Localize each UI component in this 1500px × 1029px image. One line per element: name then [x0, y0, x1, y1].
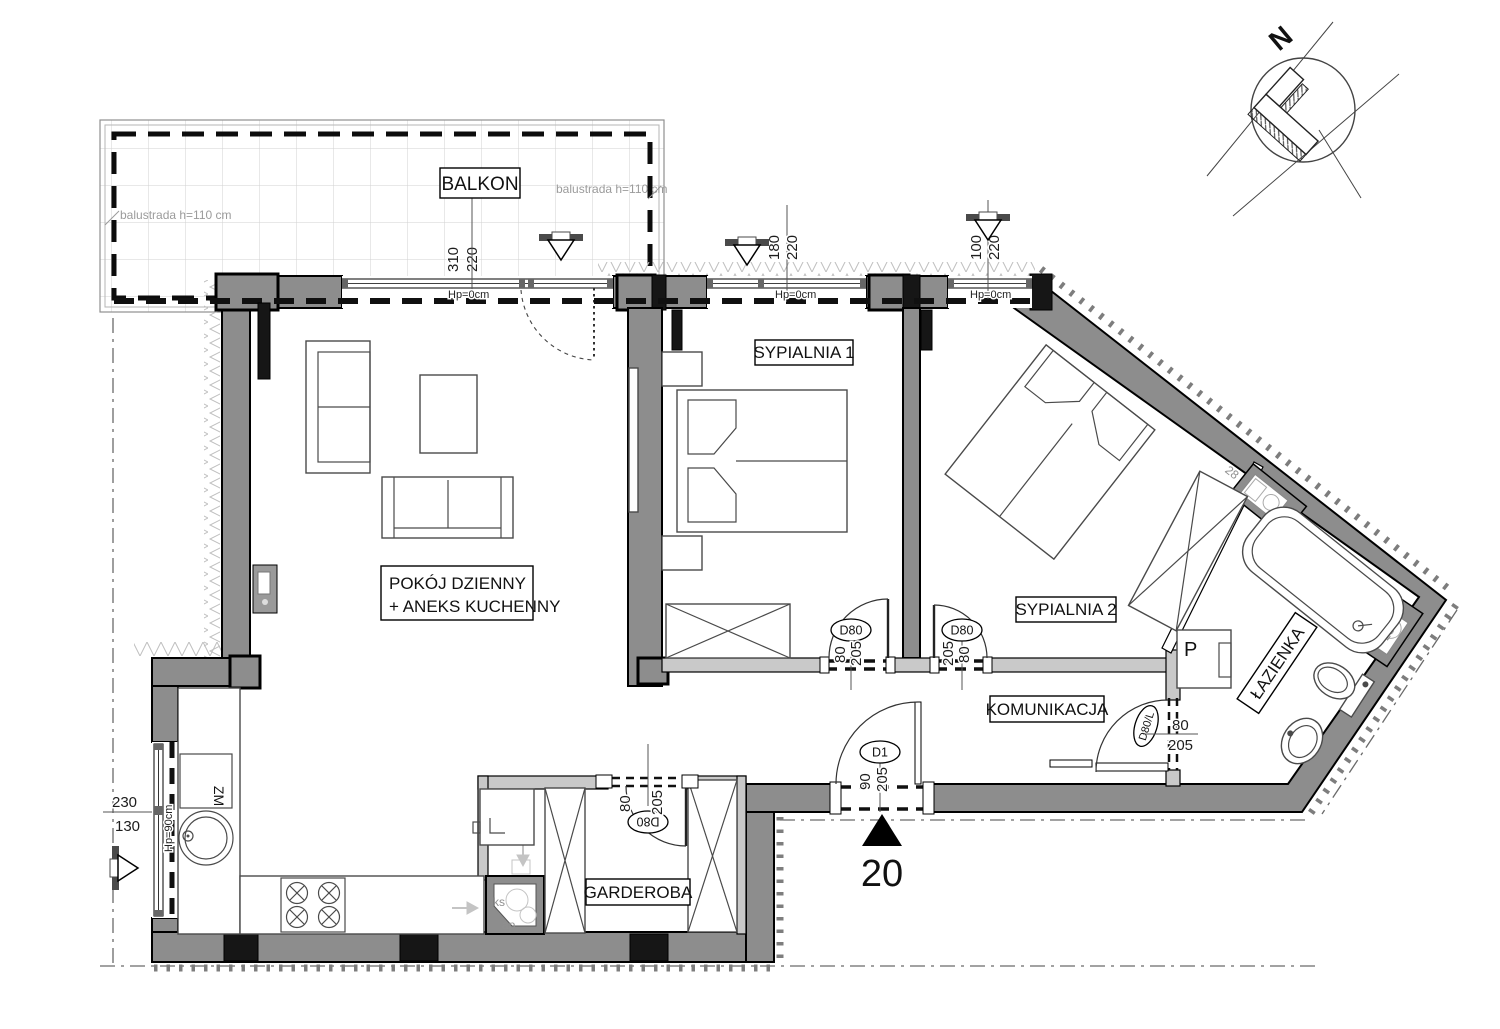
balustrade-label-right: balustrada h=110 cm — [556, 182, 668, 196]
svg-text:BALKON: BALKON — [441, 174, 518, 195]
door-dim: 205 — [874, 767, 891, 792]
window-symbol — [725, 237, 769, 265]
wall-bedrooms-hall — [662, 658, 824, 672]
north-arrow-glyph — [1248, 67, 1342, 161]
window-symbol — [110, 846, 138, 890]
door-code: D80 — [840, 624, 863, 638]
kitchen-counter-bottom — [240, 876, 484, 934]
wall-bathroom-stub — [1166, 770, 1180, 786]
sill-text: Hp=0cm — [775, 289, 816, 301]
svg-text:GARDEROBA: GARDEROBA — [584, 883, 693, 902]
tv-board — [629, 368, 638, 512]
window-kitchen: Hp=90cm — [152, 742, 178, 918]
apartment-number: 20 — [861, 853, 903, 895]
door-dim: 80 — [1172, 717, 1189, 734]
column-cap — [400, 934, 438, 961]
column — [230, 656, 260, 688]
wall-bedrooms-hall — [893, 658, 934, 672]
door-code: D80 — [636, 815, 659, 829]
floorplan-drawing: balustrada h=110 cm — [0, 0, 1500, 1029]
svg-text:POKÓJ DZIENNY: POKÓJ DZIENNY — [389, 574, 526, 593]
window-dim-kitchen: 230 130 — [103, 794, 152, 835]
door-dim: 90 — [857, 773, 874, 790]
svg-text:+ ANEKS KUCHENNY: + ANEKS KUCHENNY — [389, 597, 560, 616]
sofa-horizontal — [382, 477, 513, 538]
column-cap — [224, 934, 258, 961]
column-cap — [630, 934, 668, 961]
north-label: N — [1263, 20, 1298, 57]
radiator — [921, 310, 932, 350]
kitchen-sill-label: Hp=90cm — [163, 805, 175, 852]
radiator — [672, 310, 682, 350]
wardrobe-cabinet — [666, 604, 790, 658]
washer-label: P — [1184, 639, 1197, 661]
shaft-ap-label: ap — [502, 918, 516, 932]
dim-text: 220 — [784, 235, 801, 260]
door-dim: 205 — [848, 641, 865, 666]
door-dim: 205 — [649, 790, 666, 815]
door-leaf — [915, 702, 921, 784]
dim-text: 230 — [112, 794, 137, 811]
entry-arrow — [862, 814, 902, 846]
door-dim: 80 — [617, 795, 634, 812]
wardrobe-right — [688, 780, 737, 932]
wall-wardrobe-top — [478, 776, 608, 789]
electric-box — [253, 565, 277, 613]
floorplan-page: balustrada h=110 cm — [0, 0, 1500, 1029]
svg-text:KOMUNIKACJA: KOMUNIKACJA — [986, 700, 1109, 719]
wall-wardrobe-side — [737, 776, 746, 934]
nightstand — [662, 536, 702, 570]
coffee-table — [420, 375, 477, 453]
dim-text: 310 — [445, 247, 462, 272]
label-bedroom2: SYPIALNIA 2 — [1015, 597, 1116, 622]
sill-text: Hp=0cm — [970, 289, 1011, 301]
dishwasher-label: ZM — [211, 786, 227, 806]
wardrobe-left — [545, 788, 585, 933]
column-cap — [903, 275, 920, 310]
dim-text: 100 — [968, 235, 985, 260]
door-code: D80 — [951, 624, 974, 638]
wall-bedroom1-bedroom2 — [903, 308, 920, 658]
sill-text: Hp=0cm — [448, 289, 489, 301]
door-code: D1 — [872, 746, 888, 760]
label-hall: KOMUNIKACJA — [986, 696, 1109, 722]
label-wardrobe: GARDEROBA — [584, 879, 693, 905]
svg-text:SYPIALNIA 2: SYPIALNIA 2 — [1015, 600, 1116, 619]
door-dim: 205 — [940, 641, 957, 666]
column — [617, 275, 655, 310]
corner-cabinet — [473, 789, 534, 845]
dim-text: 180 — [766, 235, 783, 260]
door-dim: 205 — [1168, 737, 1193, 754]
shaft-ks-label: ks — [493, 895, 505, 909]
svg-text:SYPIALNIA 1: SYPIALNIA 1 — [753, 343, 854, 362]
door-dim: 80 — [832, 646, 849, 663]
door-dim: 80 — [956, 646, 973, 663]
nightstand — [662, 352, 702, 386]
label-living: POKÓJ DZIENNY + ANEKS KUCHENNY — [381, 566, 560, 620]
column-cap — [652, 275, 666, 310]
label-bedroom1: SYPIALNIA 1 — [753, 340, 854, 365]
dim-text: 130 — [115, 818, 140, 835]
north-arrow: N — [1207, 20, 1399, 216]
radiator — [258, 303, 270, 379]
balustrade-label-left: balustrada h=110 cm — [120, 208, 232, 222]
door-leaf — [1096, 763, 1168, 771]
wall-bedrooms-hall — [987, 658, 1168, 672]
column-cap — [1030, 274, 1052, 310]
washing-machine: P — [1177, 630, 1231, 688]
